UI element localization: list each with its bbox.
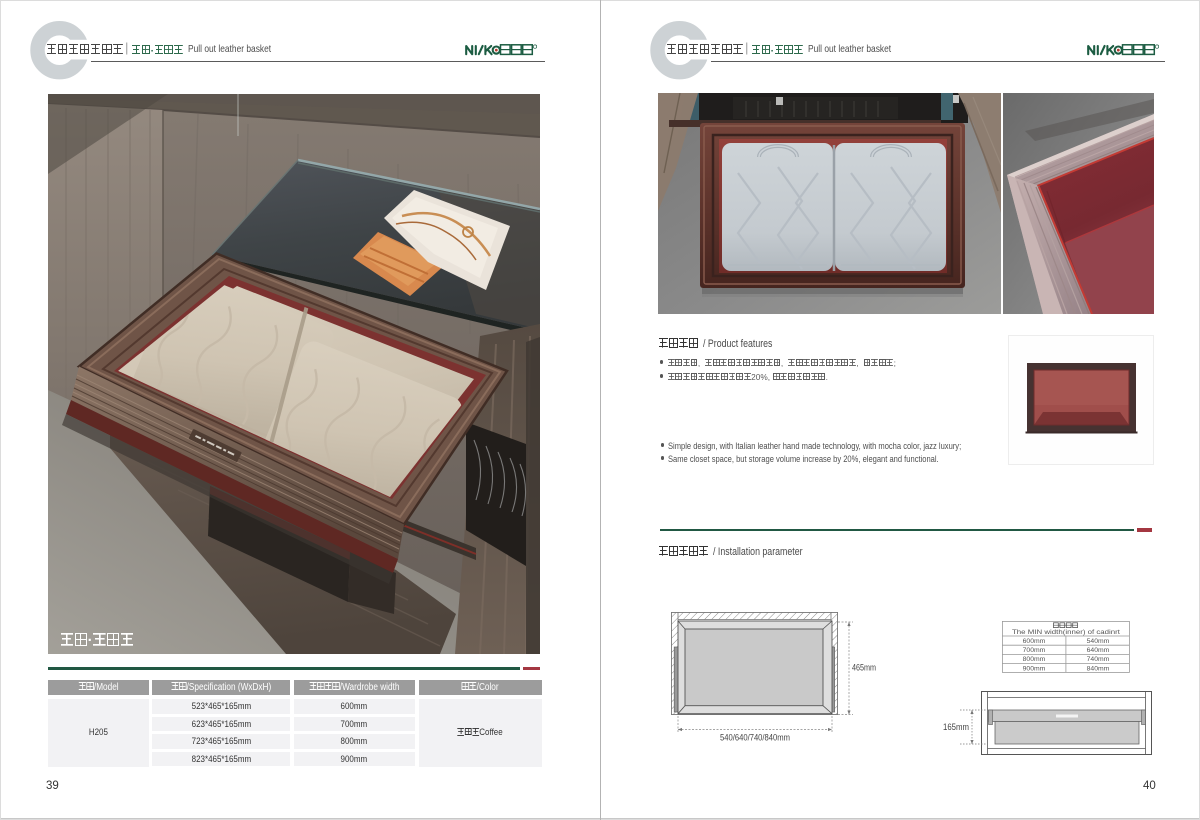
svg-text:600mm: 600mm [1023, 638, 1046, 645]
svg-text:840mm: 840mm [1087, 665, 1110, 672]
svg-text:The MIN width(inner) of cadinr: The MIN width(inner) of cadinrt [1012, 629, 1120, 636]
svg-text:540/640/740/840mm: 540/640/740/840mm [720, 733, 790, 744]
svg-text:640mm: 640mm [1087, 647, 1110, 654]
svg-text:900mm: 900mm [1023, 665, 1046, 672]
svg-text:700mm: 700mm [1023, 647, 1046, 654]
svg-text:540mm: 540mm [1087, 638, 1110, 645]
svg-text:800mm: 800mm [1023, 656, 1046, 663]
svg-text:165mm: 165mm [943, 722, 969, 733]
svg-text:465mm: 465mm [852, 663, 876, 673]
svg-text:740mm: 740mm [1087, 656, 1110, 663]
